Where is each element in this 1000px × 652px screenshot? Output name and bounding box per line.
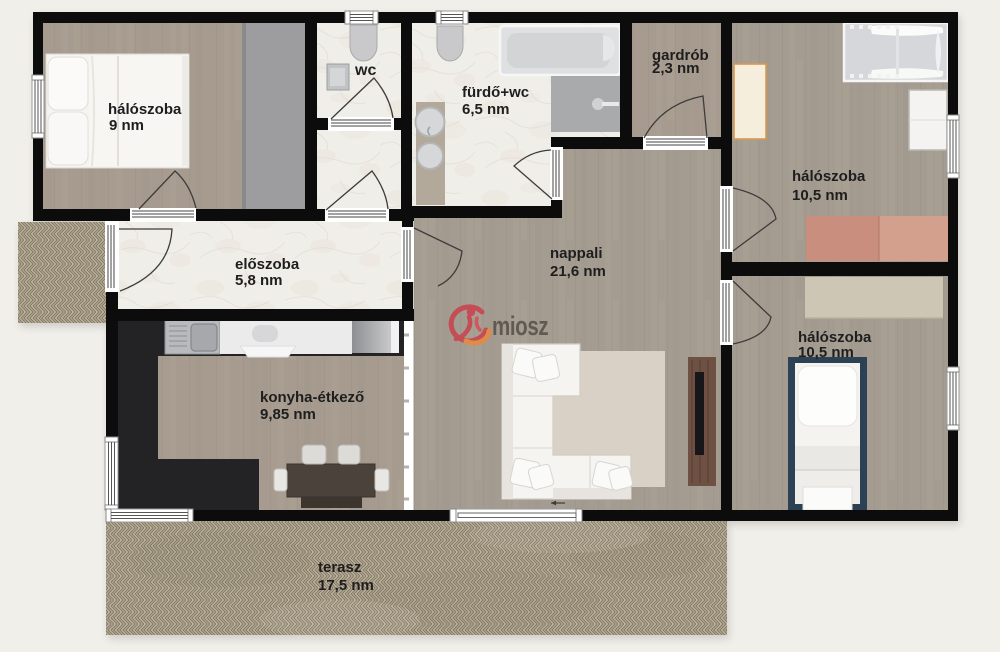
svg-text:konyha-étkező: konyha-étkező: [260, 389, 364, 406]
svg-text:miosz: miosz: [492, 311, 549, 341]
svg-text:6,5 nm: 6,5 nm: [462, 101, 510, 118]
svg-text:fürdő+wc: fürdő+wc: [462, 84, 529, 101]
svg-text:2,3 nm: 2,3 nm: [652, 60, 700, 77]
svg-text:hálószoba: hálószoba: [108, 101, 182, 118]
svg-text:terasz: terasz: [318, 559, 361, 576]
svg-text:9,85 nm: 9,85 nm: [260, 406, 316, 423]
svg-text:hálószoba: hálószoba: [792, 168, 866, 185]
svg-text:wc: wc: [354, 62, 376, 79]
svg-text:10,5 nm: 10,5 nm: [798, 344, 854, 361]
svg-text:10,5 nm: 10,5 nm: [792, 187, 848, 204]
svg-text:előszoba: előszoba: [235, 256, 300, 273]
svg-text:5,8 nm: 5,8 nm: [235, 272, 283, 289]
svg-text:21,6 nm: 21,6 nm: [550, 263, 606, 280]
svg-text:9 nm: 9 nm: [109, 117, 144, 134]
svg-text:nappali: nappali: [550, 245, 603, 262]
svg-text:17,5 nm: 17,5 nm: [318, 577, 374, 594]
